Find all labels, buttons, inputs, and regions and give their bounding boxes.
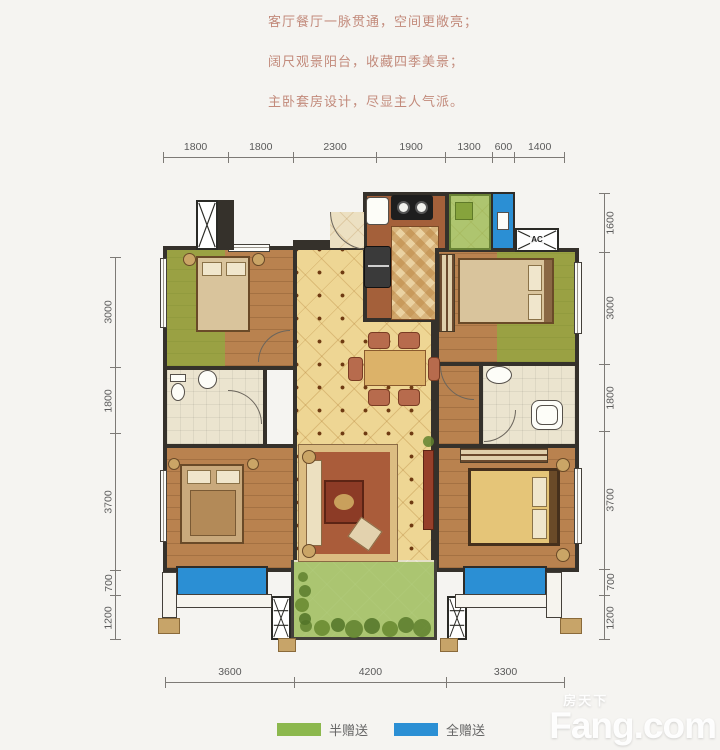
dining-chair <box>348 357 363 381</box>
toilet <box>170 374 186 382</box>
bed-top-left <box>196 256 250 332</box>
sofa-side-table <box>302 450 316 464</box>
burner <box>397 201 410 214</box>
legend: 半赠送 全赠送 <box>277 720 485 739</box>
sofa-side-table <box>302 544 316 558</box>
wall-stub-entry <box>293 240 333 250</box>
balcony-plants-row <box>300 620 312 632</box>
nightstand <box>247 458 259 470</box>
window-left-bedroom-bottom <box>160 470 167 542</box>
fridge <box>364 246 391 288</box>
window-top-bedroom-left <box>228 244 270 252</box>
bay-window-bottom-right <box>463 566 547 596</box>
dining-table <box>364 350 426 386</box>
ac-cross-icon <box>273 598 289 638</box>
sill-left-column <box>162 572 177 618</box>
ac-unit-top-right: AC <box>515 228 559 252</box>
dining-chair <box>368 332 390 349</box>
stove <box>391 195 433 220</box>
bedspread <box>190 490 236 536</box>
window-left-bedroom-top <box>160 258 167 328</box>
full-gift-label: 全赠送 <box>446 720 485 739</box>
floor-plan: AC <box>0 0 720 750</box>
wall-stub-top-left <box>218 200 234 250</box>
kitchen-sink <box>366 197 389 225</box>
pillow <box>532 477 547 507</box>
dining-chair <box>428 357 440 381</box>
balcony-table <box>455 202 473 220</box>
sofa <box>306 460 322 546</box>
bathtub-inner <box>536 405 558 425</box>
pillow <box>216 470 240 484</box>
fridge-divider <box>368 265 389 267</box>
dining-chair <box>398 332 420 349</box>
floorplan-page: 客厅餐厅一脉贯通，空间更敞亮； 阔尺观景阳台，收藏四季美景； 主卧套房设计，尽显… <box>0 0 720 750</box>
headboard <box>544 260 552 322</box>
pillow <box>187 470 211 484</box>
pillar-balcony-left <box>278 638 296 652</box>
sill-bay-bottom-left <box>168 594 272 608</box>
kitchen-walkway <box>391 226 439 320</box>
balcony-gift-overlay <box>294 562 434 637</box>
dining-chair <box>368 389 390 406</box>
bathroom-sink <box>198 370 217 389</box>
pillow <box>202 262 222 276</box>
dining-chair <box>398 389 420 406</box>
ac-unit-bottom-left <box>271 596 291 640</box>
bed-top-right <box>458 258 554 324</box>
window-right-master <box>574 468 582 544</box>
full-gift-swatch <box>394 723 438 736</box>
sill-bay-bottom-right <box>455 594 553 608</box>
bed-master <box>468 468 560 546</box>
pillow <box>528 265 542 291</box>
pillow <box>226 262 246 276</box>
legend-item-full-gift: 全赠送 <box>394 720 485 739</box>
pillar-right <box>560 618 582 634</box>
equipment-icon <box>497 212 509 230</box>
nightstand <box>183 253 196 266</box>
wardrobe-top-right <box>439 254 455 332</box>
pillar-balcony-right <box>440 638 458 652</box>
window-right-bedroom-top <box>574 262 582 334</box>
half-gift-swatch <box>277 723 321 736</box>
nightstand <box>556 458 570 472</box>
headboard <box>549 471 557 543</box>
ac-unit-top-left <box>196 200 218 250</box>
bathroom-sink <box>486 366 512 384</box>
bed-bottom-left <box>180 464 244 544</box>
pillow <box>528 294 542 320</box>
coffee-table-top <box>334 494 354 510</box>
ac-label: AC <box>530 236 544 244</box>
pillar-left <box>158 618 180 634</box>
pillow <box>532 509 547 539</box>
ac-cross-icon <box>198 202 216 248</box>
burner <box>415 201 428 214</box>
nightstand <box>556 548 570 562</box>
balcony-plants-column <box>298 572 308 582</box>
coffee-table <box>324 480 364 524</box>
fang-watermark: 房天下 Fang.com <box>549 694 716 744</box>
toilet-bowl <box>171 383 185 401</box>
tv-console <box>423 450 434 530</box>
nightstand <box>168 458 180 470</box>
bay-window-bottom-left <box>176 566 268 596</box>
sill-right-column <box>546 572 562 618</box>
wardrobe-master <box>460 448 548 463</box>
plant-pot <box>423 436 434 447</box>
legend-item-half-gift: 半赠送 <box>277 720 368 739</box>
bathtub <box>531 400 563 430</box>
nightstand <box>252 253 265 266</box>
half-gift-label: 半赠送 <box>329 720 368 739</box>
watermark-en: Fang.com <box>549 707 716 744</box>
